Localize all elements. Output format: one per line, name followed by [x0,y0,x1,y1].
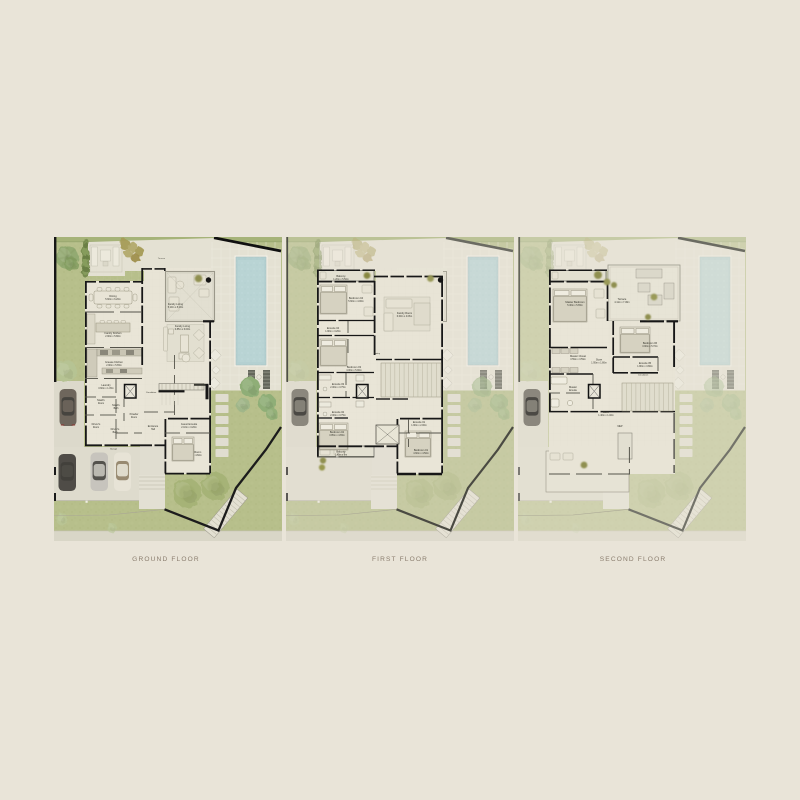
svg-text:Powder: Powder [130,412,139,416]
svg-text:MEP: MEP [618,426,623,428]
svg-text:Balcony: Balcony [336,274,346,278]
svg-text:Family Living: Family Living [168,302,184,306]
svg-text:5.10m x 8.10m: 5.10m x 8.10m [168,307,183,309]
svg-text:Driver's: Driver's [92,422,101,426]
svg-text:5.60m x 6.20m: 5.60m x 6.20m [105,299,120,301]
svg-text:Master Bedroom: Master Bedroom [565,300,584,304]
svg-text:Garage: Garage [110,448,118,451]
svg-text:Master: Master [569,385,577,389]
svg-text:Bedroom 03: Bedroom 03 [347,365,362,369]
svg-text:5.30m x 5.65m: 5.30m x 5.65m [567,305,582,307]
svg-text:Laundry: Laundry [101,383,111,387]
svg-text:Family Living: Family Living [175,324,191,328]
svg-text:6.00m x 4.06m: 6.00m x 4.06m [397,316,412,318]
svg-text:Maid's: Maid's [97,398,105,402]
svg-text:Entrance: Entrance [148,424,159,428]
svg-text:Ensuite 02: Ensuite 02 [332,410,345,414]
svg-text:Ensuite 01: Ensuite 01 [413,420,426,424]
svg-text:Hall: Hall [151,429,155,431]
svg-text:Bedroom 01: Bedroom 01 [414,448,429,452]
svg-text:Family Room: Family Room [397,311,412,315]
svg-text:Circulation: Circulation [638,374,649,377]
svg-text:5.60m x 4.00m: 5.60m x 4.00m [348,301,363,303]
svg-text:2.90m x 5.80m: 2.90m x 5.80m [105,336,120,338]
svg-text:Balcony: Balcony [336,450,346,454]
svg-text:3.90m x 5.70m: 3.90m x 5.70m [642,346,657,348]
svg-text:Family Kitchen: Family Kitchen [104,331,122,335]
svg-text:2.10m x 3.20m: 2.10m x 3.20m [181,427,196,429]
svg-text:Room: Room [93,427,99,429]
svg-text:1.80m x 3.80m: 1.80m x 3.80m [637,366,652,368]
svg-text:Store: Store [596,358,603,362]
svg-text:2.00m x 3.75m: 2.00m x 3.75m [330,387,345,389]
svg-text:1.90m x 2.00m: 1.90m x 2.00m [411,425,426,427]
svg-text:Terrace: Terrace [618,297,627,301]
svg-text:1.95m x 1.80m: 1.95m x 1.80m [591,363,606,365]
svg-text:Ensuite 03: Ensuite 03 [332,382,345,386]
svg-text:Ensuite: Ensuite [569,389,577,392]
svg-text:3.59m x 3.59m: 3.59m x 3.59m [570,359,585,361]
svg-text:Pantry: Pantry [374,352,381,355]
svg-text:Ensuite 04: Ensuite 04 [327,326,340,330]
svg-text:1.90m x 3.20m: 1.90m x 3.20m [325,331,340,333]
svg-text:4.00m x 5.90m: 4.00m x 5.90m [346,370,361,372]
svg-text:Dining: Dining [109,294,117,298]
svg-text:Circulation: Circulation [146,391,157,394]
svg-text:Bath: Bath [113,431,118,434]
svg-text:3.85m x 4.65m: 3.85m x 4.65m [329,435,344,437]
svg-text:Store: Store [603,410,610,414]
svg-text:Grease Kitchen: Grease Kitchen [105,360,123,364]
svg-text:Ensuite 05: Ensuite 05 [639,361,652,365]
svg-text:Maid's: Maid's [112,403,120,407]
svg-text:1.20m x 5.50m: 1.20m x 5.50m [333,279,348,281]
svg-text:Terrace: Terrace [158,257,166,260]
svg-text:2.90m x 5.65m: 2.90m x 5.65m [106,365,121,367]
svg-text:1.45m x 6m: 1.45m x 6m [335,455,347,457]
svg-text:4.11m x 7.30m: 4.11m x 7.30m [614,302,629,304]
svg-text:6.85m x 6.00m: 6.85m x 6.00m [175,329,190,331]
svg-text:Bedroom 06: Bedroom 06 [643,341,658,345]
svg-text:2.00m x 3.75m: 2.00m x 3.75m [330,415,345,417]
svg-text:Bedroom 04: Bedroom 04 [349,296,364,300]
svg-text:Room: Room [131,417,137,419]
svg-text:Driver's: Driver's [111,427,120,431]
svg-text:Master Closet: Master Closet [570,354,586,358]
svg-text:Bath: Bath [114,407,119,410]
svg-text:4.60m x 4.50m: 4.60m x 4.50m [413,453,428,455]
svg-text:3.60m x 1.45m: 3.60m x 1.45m [98,388,113,390]
svg-text:Guest Ensuite: Guest Ensuite [181,422,198,426]
svg-text:Bedroom 02: Bedroom 02 [330,430,345,434]
svg-text:1.40m x 1.40m: 1.40m x 1.40m [598,415,613,417]
svg-text:Room: Room [98,403,104,405]
